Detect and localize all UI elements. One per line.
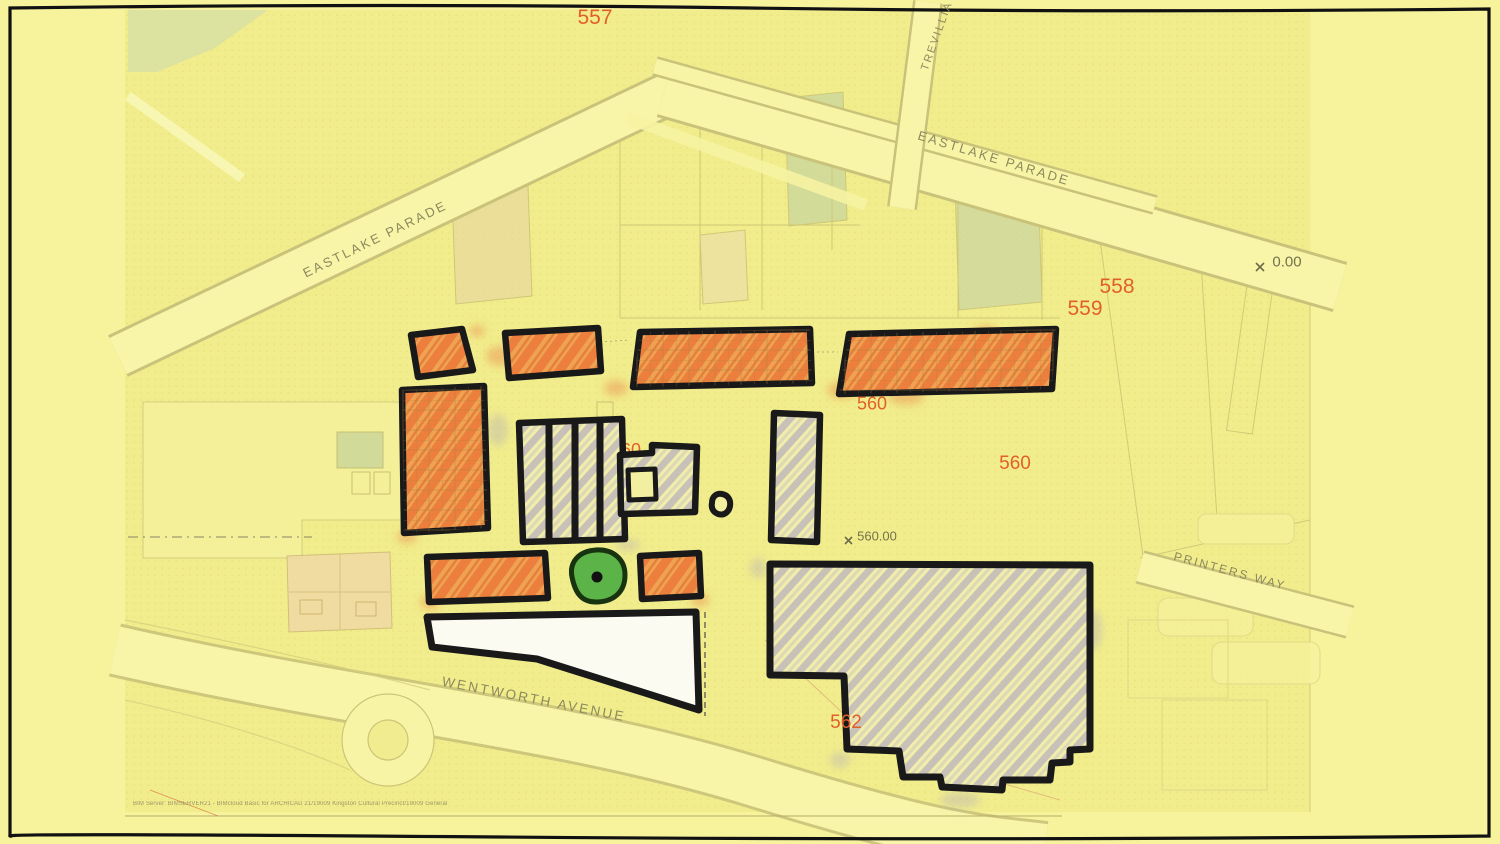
building-north-3 [633, 329, 812, 387]
zone-label-557: 557 [577, 6, 612, 30]
building-north-1 [411, 329, 473, 377]
building-south-orange-west [427, 553, 548, 602]
building-south-orange-east [640, 553, 701, 599]
footer-note: BIM Server: BIMSERVER21 - BIMcloud Basic… [133, 801, 447, 807]
zone-label-562: 562 [830, 712, 862, 734]
building-west-orange [402, 386, 488, 533]
zone-label-559: 559 [1067, 297, 1102, 321]
building-center-annex [620, 445, 697, 514]
building-gray-bar [771, 413, 820, 542]
tree-symbol [571, 550, 625, 602]
zone-label-560-north: 560 [857, 394, 887, 415]
building-north-4 [839, 329, 1056, 394]
datum-label-center: 560.00 [857, 529, 897, 544]
roundabout [342, 694, 434, 786]
site-plan-sheet: 560 [0, 0, 1500, 844]
building-center-striped [519, 419, 625, 542]
zone-label-560-east: 560 [999, 453, 1031, 475]
zone-label-558: 558 [1099, 275, 1134, 299]
datum-label-east: 0.00 [1272, 254, 1301, 271]
building-north-2 [505, 328, 601, 378]
courtyard-ring [712, 494, 730, 515]
background-map [115, 2, 1350, 844]
map-canvas: 560 [0, 0, 1500, 844]
